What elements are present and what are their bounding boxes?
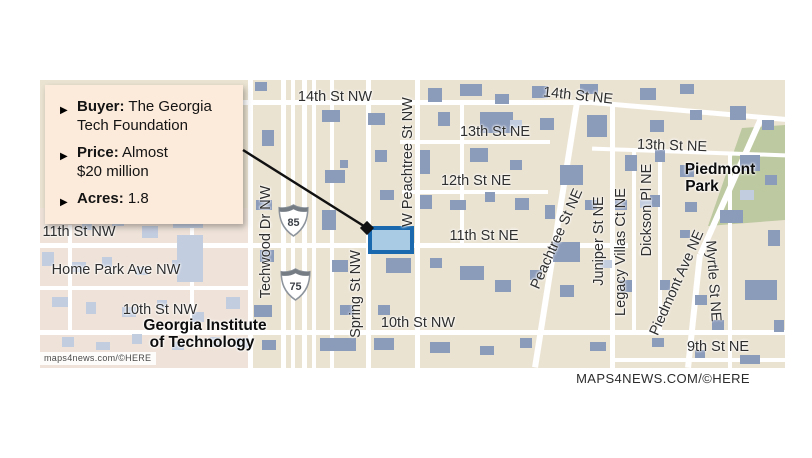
building	[762, 120, 774, 130]
building	[560, 165, 583, 185]
callout-item-label: Price:	[77, 144, 119, 161]
building	[142, 226, 158, 238]
highlighted-parcel	[368, 226, 414, 254]
map-attribution-small: maps4news.com/©HERE	[40, 352, 156, 365]
svg-text:85: 85	[287, 217, 299, 229]
building	[730, 106, 746, 120]
building	[428, 88, 442, 102]
building	[460, 84, 482, 96]
street-label: 13th St NE	[460, 124, 530, 140]
building	[625, 155, 637, 171]
building	[470, 148, 488, 162]
street-label: Legacy Villas Ct NE	[613, 188, 629, 316]
building	[368, 113, 385, 125]
building	[430, 342, 450, 353]
building	[720, 210, 743, 223]
building	[690, 110, 702, 120]
street-label: Dickson Pl NE	[639, 164, 655, 257]
street-label: 14th St NW	[298, 89, 372, 105]
building	[255, 82, 267, 91]
building	[375, 150, 387, 162]
callout-item: ▶Price: Almost$20 million	[60, 143, 231, 181]
road	[400, 140, 550, 144]
building	[430, 258, 442, 268]
building	[768, 230, 780, 246]
building	[680, 84, 694, 94]
building	[386, 258, 411, 273]
building	[262, 130, 274, 146]
building	[765, 175, 777, 185]
building	[460, 266, 484, 280]
street-label: Juniper St NE	[591, 196, 607, 285]
road	[402, 190, 548, 194]
building	[52, 297, 68, 307]
road	[68, 225, 72, 332]
interstate-85-shield: 85	[278, 204, 309, 242]
building	[262, 340, 276, 350]
road	[632, 150, 636, 332]
street-label: 10th St NW	[381, 315, 455, 331]
news-map-graphic: { "page": {"bg": "#ffffff"}, "callout": …	[0, 0, 812, 458]
building	[320, 338, 356, 351]
callout-item-text: The Georgia	[128, 98, 211, 115]
building	[685, 202, 697, 212]
building	[640, 88, 656, 100]
building	[480, 346, 494, 355]
callout-item-text: 1.8	[128, 190, 149, 207]
svg-text:75: 75	[289, 281, 301, 293]
building	[740, 355, 760, 364]
building	[560, 285, 574, 297]
building	[226, 297, 240, 309]
building	[438, 112, 450, 126]
street-label: 12th St NE	[441, 173, 511, 189]
place-label: Park	[685, 178, 719, 196]
building	[540, 118, 554, 130]
place-label: Piedmont	[685, 161, 756, 179]
callout-item: ▶Buyer: The GeorgiaTech Foundation	[60, 97, 231, 135]
place-label: Georgia Institute	[143, 317, 266, 335]
building	[374, 338, 394, 350]
building	[177, 235, 203, 282]
building	[495, 94, 509, 104]
bullet-icon: ▶	[60, 193, 68, 212]
street-label: Techwood Dr NW	[258, 186, 274, 299]
callout-item-text: Tech Foundation	[77, 117, 188, 134]
street-label: Peachtree St NE	[528, 186, 587, 291]
interstate-75-shield: 75	[280, 268, 311, 306]
road	[40, 243, 628, 248]
street-label: Spring St NW	[348, 250, 364, 338]
street-label: Myrtle St NE	[702, 240, 724, 322]
bullet-icon: ▶	[60, 147, 68, 166]
callout-item-label: Acres:	[77, 190, 124, 207]
building	[378, 305, 390, 315]
street-label: W Peachtree St NW	[400, 97, 416, 227]
street-label: 11th St NE	[449, 228, 518, 244]
building	[132, 334, 142, 344]
street-label: 9th St NE	[687, 339, 749, 355]
building	[495, 280, 511, 292]
callout-item: ▶Acres: 1.8	[60, 189, 231, 208]
building	[587, 115, 607, 137]
building	[774, 320, 784, 332]
building	[740, 190, 754, 200]
building	[515, 198, 529, 210]
building	[510, 160, 522, 170]
building	[545, 205, 555, 219]
building	[340, 160, 348, 168]
building	[254, 305, 272, 317]
building	[322, 210, 336, 230]
place-label: of Technology	[150, 334, 255, 352]
bullet-icon: ▶	[60, 101, 68, 120]
building	[420, 150, 430, 174]
callout-item-text: Almost	[122, 144, 168, 161]
building	[380, 190, 394, 200]
building	[96, 342, 110, 350]
building	[590, 342, 606, 351]
building	[650, 120, 664, 132]
callout-item-text: $20 million	[77, 163, 149, 180]
building	[62, 337, 74, 347]
callout-item-label: Buyer:	[77, 98, 125, 115]
callout-box: ▶Buyer: The GeorgiaTech Foundation▶Price…	[45, 85, 243, 224]
street-label: 10th St NW	[123, 302, 197, 318]
road	[312, 80, 316, 368]
map-attribution-footer: MAPS4NEWS.COM/©HERE	[0, 371, 750, 386]
building	[485, 192, 495, 202]
street-label: 11th St NW	[42, 224, 115, 240]
street-label: 13th St NE	[637, 137, 708, 155]
building	[652, 338, 664, 347]
building	[745, 280, 777, 300]
building	[332, 260, 348, 272]
building	[86, 302, 96, 314]
building	[420, 195, 432, 209]
building	[520, 338, 532, 348]
building	[322, 110, 340, 122]
building	[450, 200, 466, 210]
building	[325, 170, 345, 183]
street-label: Home Park Ave NW	[52, 262, 181, 278]
